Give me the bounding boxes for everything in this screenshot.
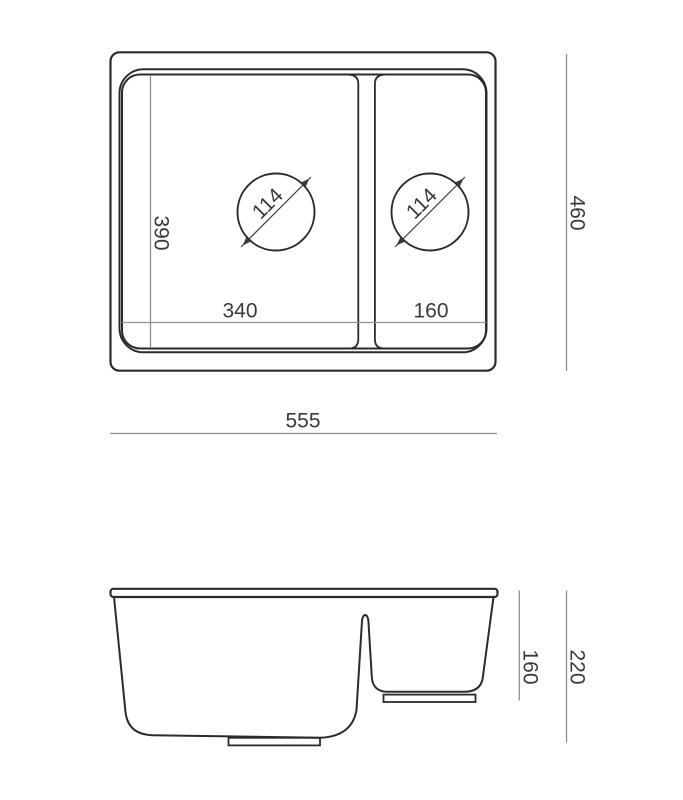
- sink-technical-drawing-page: 114 114 390 340 160 460 555 160: [0, 0, 683, 800]
- sink-technical-drawing: 114 114 390 340 160 460 555 160: [0, 0, 683, 800]
- main-bowl-foot: [229, 738, 321, 746]
- dim-label-half-drain-diameter: 114: [402, 184, 442, 224]
- side-view-body-outline: [114, 597, 494, 738]
- sink-side-view: 160 220: [111, 589, 589, 746]
- bowl-divider-left-edge: [349, 75, 358, 349]
- dim-label-half-bowl-width: 160: [413, 300, 448, 323]
- dim-label-overall-depth: 460: [566, 195, 589, 230]
- dim-label-main-drain-diameter: 114: [248, 184, 288, 224]
- dim-label-overall-height: 220: [566, 649, 589, 684]
- bowl-divider-right-edge: [375, 75, 384, 349]
- half-bowl-foot: [384, 695, 476, 702]
- sink-top-view: 114 114 390 340 160 460 555: [110, 52, 589, 433]
- dim-label-overall-width: 555: [285, 410, 320, 433]
- dim-label-half-bowl-height: 160: [519, 649, 542, 684]
- side-view-rim: [111, 589, 498, 597]
- dim-label-main-bowl-width: 340: [222, 300, 257, 323]
- dim-label-main-bowl-depth: 390: [150, 215, 173, 250]
